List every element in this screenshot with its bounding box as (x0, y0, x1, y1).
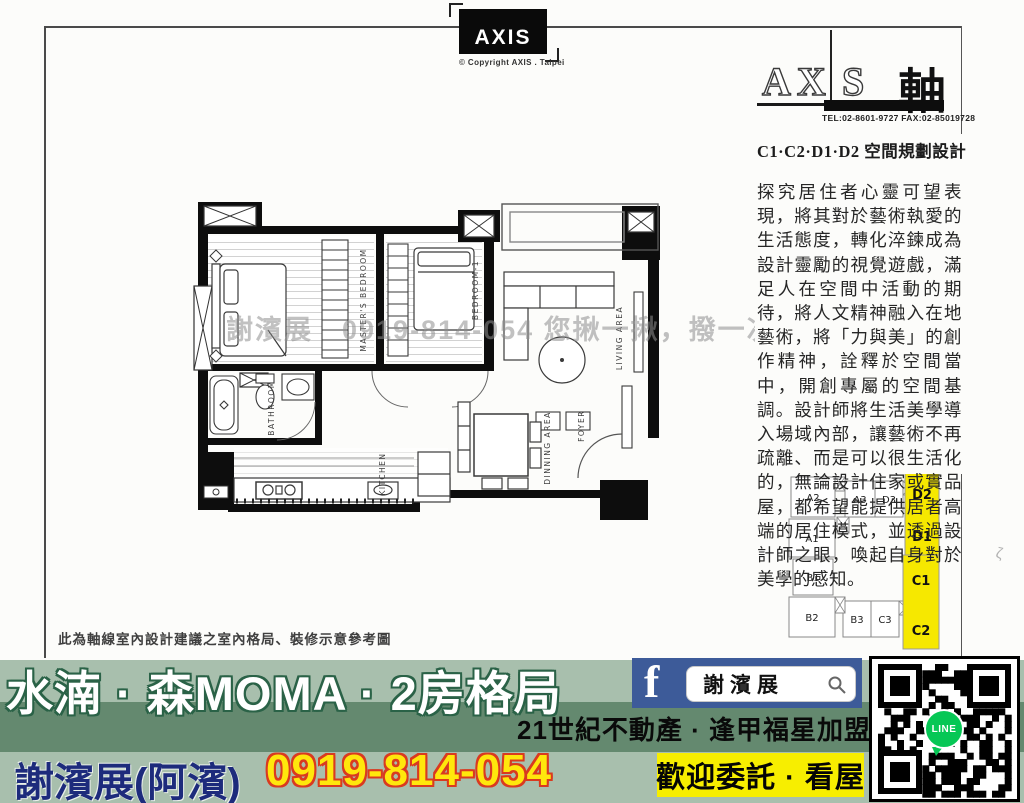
line-logo: LINE (924, 709, 964, 749)
washing-machine (204, 486, 228, 498)
dining-set (458, 402, 541, 489)
shoe-cabinet (622, 386, 632, 448)
facebook-badge: f 謝濱展 (632, 658, 862, 708)
plan-caption: 此為軸線室內設計建議之室內格局、裝修示意參考圖 (58, 628, 392, 648)
agent-name: 謝濱展(阿濱) (14, 750, 241, 803)
brand-letters-ax: AX (762, 58, 832, 105)
unit-b3: B3 (850, 615, 863, 626)
dining-area-label: DINNING AREA (543, 411, 552, 484)
kitchen-label: KITCHEN (378, 453, 387, 496)
facebook-search-text: 謝濱展 (703, 669, 784, 699)
design-column: C1·C2·D1·D2 空間規劃設計 探究居住者心靈可望表現，將其對於藝術執愛的… (755, 134, 963, 474)
axis-logo-text: AXIS (474, 26, 531, 50)
line-qr-code: LINE (869, 656, 1020, 802)
coffee-table-center (560, 358, 564, 362)
pen-mark: ζ (994, 544, 1004, 562)
brand-cjk-mark: 軸 (898, 52, 946, 122)
facebook-search-box: 謝濱展 (686, 666, 856, 702)
cta-label: 歡迎委託 · 看屋 (656, 754, 865, 796)
floor-plan: MASTER'S BEDROOM BEDROOM-1 LIVING AREA B… (170, 190, 670, 610)
bathroom-label: BATHROOM (267, 380, 276, 435)
foyer-label: FOYER (577, 410, 586, 442)
footer-banner: 水湳 · 森MOMA · 2房格局 f 謝濱展 21世紀不動產 · 逢甲福星加盟… (0, 660, 1024, 803)
phone-number: 0919-814-054 (266, 746, 552, 796)
frame-border-left (44, 26, 46, 658)
cta-box: 歡迎委託 · 看屋 (657, 753, 864, 797)
agency-line: 21世紀不動產 · 逢甲福星加盟店 (517, 710, 898, 747)
bedroom-door-arcs (372, 371, 488, 407)
flyer-page: AXIS © Copyright AXIS . Taipei AX S 軸 TE… (0, 0, 1024, 803)
design-body-text: 探究居住者心靈可望表現，將其對於藝術執愛的生活態度，轉化淬鍊成為設計靈勵的視覺遊… (757, 180, 962, 591)
facebook-icon: f (644, 658, 659, 706)
unit-c2-highlight: C2 (912, 624, 931, 639)
axis-copyright: © Copyright AXIS . Taipei (459, 58, 569, 67)
design-heading: C1·C2·D1·D2 空間規劃設計 (757, 138, 963, 162)
search-icon (827, 675, 847, 695)
unit-b2: B2 (805, 613, 818, 624)
brand-letter-s: S (842, 58, 864, 105)
bathtub (210, 376, 238, 434)
brand-black-bar (824, 100, 944, 111)
axis-logo: AXIS (459, 9, 547, 54)
bathroom-door-arc (277, 402, 315, 440)
unit-c3: C3 (878, 615, 891, 626)
sink (282, 374, 314, 400)
project-title: 水湳 · 森MOMA · 2房格局 (6, 655, 562, 724)
brand-contact: TEL:02-8601-9727 FAX:02-85019728 (822, 113, 975, 123)
